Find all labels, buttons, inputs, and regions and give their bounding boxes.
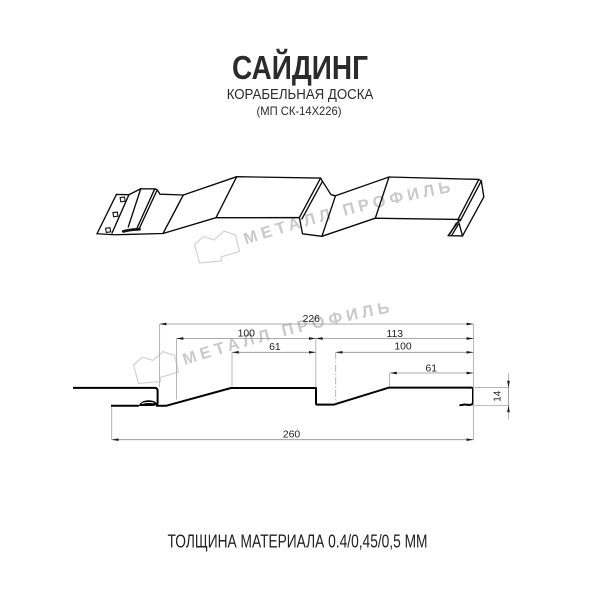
svg-text:САЙДИНГ: САЙДИНГ	[232, 48, 368, 87]
svg-text:14: 14	[493, 390, 504, 402]
svg-text:226: 226	[303, 314, 321, 325]
svg-text:100: 100	[394, 342, 412, 353]
svg-text:(МП СК-14Х226): (МП СК-14Х226)	[257, 105, 342, 118]
svg-text:100: 100	[238, 328, 256, 339]
svg-text:61: 61	[426, 363, 438, 374]
svg-text:113: 113	[387, 329, 404, 340]
svg-text:КОРАБЕЛЬНАЯ ДОСКА: КОРАБЕЛЬНАЯ ДОСКА	[227, 87, 374, 103]
svg-text:ТОЛЩИНА МАТЕРИАЛА 0.4/0,45/0,5: ТОЛЩИНА МАТЕРИАЛА 0.4/0,45/0,5 ММ	[168, 531, 428, 552]
svg-text:260: 260	[283, 430, 301, 441]
svg-text:61: 61	[269, 342, 281, 353]
